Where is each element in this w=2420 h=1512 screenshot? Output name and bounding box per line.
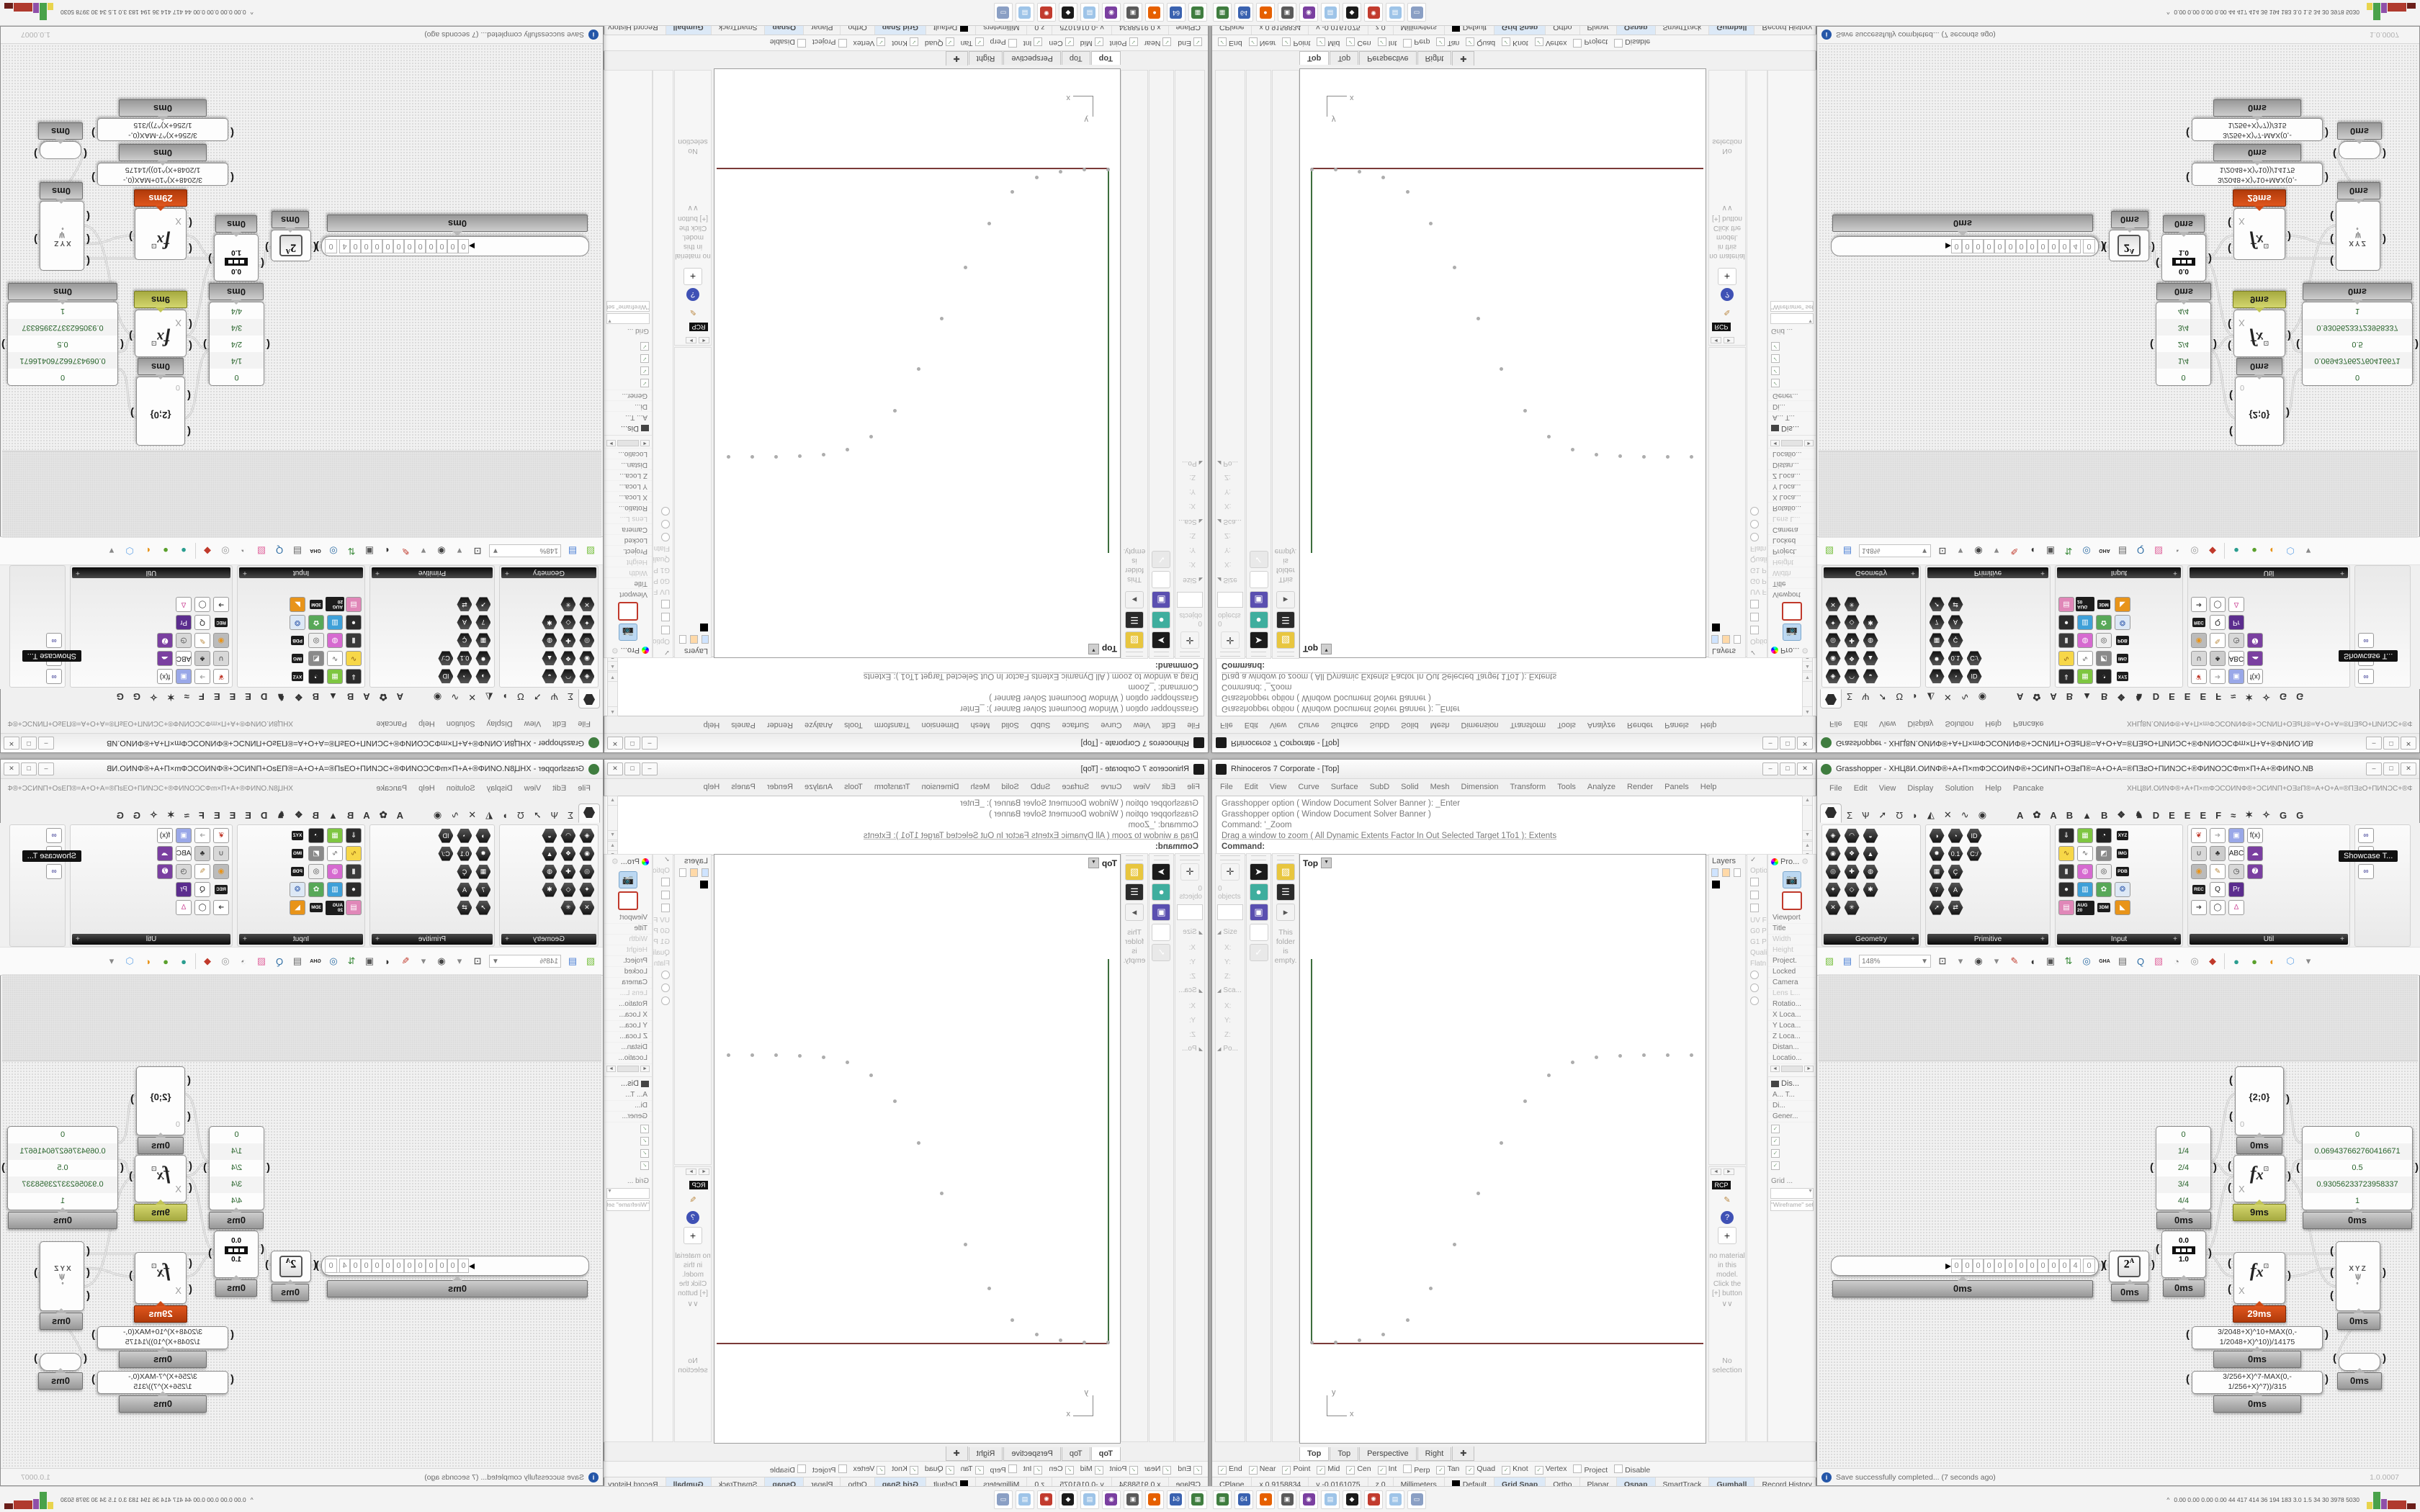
- wireframe-setting[interactable]: "Wireframe" set...: [606, 1200, 650, 1211]
- plugin-tab-0[interactable]: A: [2012, 807, 2027, 823]
- component-icon[interactable]: ▣: [174, 827, 193, 845]
- viewport-tab-top[interactable]: Top: [1330, 51, 1358, 65]
- property-row[interactable]: Lens L...: [1768, 513, 1816, 523]
- viewport-tab-top[interactable]: Top: [1091, 1447, 1121, 1461]
- option-radio[interactable]: [653, 982, 673, 995]
- ribbon-group-label[interactable]: Primitive+: [372, 567, 493, 578]
- donut-icon[interactable]: ◎: [2188, 544, 2201, 557]
- expression-2[interactable]: fx⊡X((): [135, 208, 187, 260]
- taskbar-save64[interactable]: 64: [1167, 4, 1186, 22]
- domain[interactable]: 0.01.0(): [214, 234, 259, 282]
- component-icon[interactable]: XYZ: [2113, 667, 2132, 685]
- gh-menu-view[interactable]: View: [519, 717, 547, 730]
- taskbar-window-app[interactable]: ▭: [1407, 4, 1426, 22]
- component-icon[interactable]: ID: [1965, 667, 1984, 685]
- display-sub-row[interactable]: A... T...: [1768, 1090, 1816, 1101]
- component-icon[interactable]: ✳: [1842, 899, 1861, 917]
- camera-icon[interactable]: ▣: [1152, 904, 1171, 921]
- viewport-tab-perspective[interactable]: Perspective: [1359, 1447, 1416, 1461]
- zoom-extents-icon[interactable]: ⊡: [471, 955, 484, 968]
- display-checkbox[interactable]: ✓: [604, 1135, 652, 1147]
- sketch-pen-icon[interactable]: ✎: [2008, 544, 2021, 557]
- component-icon[interactable]: ◑: [474, 827, 493, 845]
- find-icon[interactable]: Q: [273, 955, 286, 968]
- rhino-command-scrollbar[interactable]: ▲ ▼: [607, 796, 618, 842]
- component-icon[interactable]: ✱: [540, 613, 559, 631]
- menu-tools[interactable]: Tools: [1552, 780, 1581, 793]
- component-icon[interactable]: ✕: [578, 899, 596, 917]
- boxedit-input[interactable]: [1217, 592, 1243, 608]
- compass-icon[interactable]: ✛: [1180, 863, 1199, 881]
- taskbar-notes[interactable]: ▤: [1080, 4, 1099, 22]
- plugin-tab-8[interactable]: D: [2148, 807, 2164, 823]
- component-icon[interactable]: ➐: [156, 631, 174, 649]
- component-icon[interactable]: ◠: [559, 667, 578, 685]
- slider-digit[interactable]: 0: [1951, 1259, 1962, 1273]
- boxedit-input[interactable]: [1177, 592, 1203, 608]
- option-radio[interactable]: [653, 530, 673, 543]
- component-icon[interactable]: ∿: [326, 649, 344, 667]
- camera-pair-icon[interactable]: ▣: [363, 955, 376, 968]
- expression-2[interactable]: fx⊡X((): [2233, 1252, 2285, 1304]
- property-row[interactable]: Lens L...: [604, 513, 652, 523]
- option-checkbox[interactable]: [653, 610, 673, 623]
- viewport-tab-right[interactable]: Right: [969, 1447, 1003, 1461]
- close-button[interactable]: ✕: [607, 737, 623, 750]
- component-icon[interactable]: IMG: [288, 845, 307, 863]
- component-icon[interactable]: ◎: [1824, 631, 1842, 649]
- component-icon[interactable]: A: [455, 881, 474, 899]
- option-checkbox[interactable]: [653, 597, 673, 610]
- caret-icon[interactable]: ▾: [1990, 544, 2003, 557]
- component-icon[interactable]: ◍: [326, 863, 344, 881]
- plugin-tab-14[interactable]: ✶: [163, 806, 179, 823]
- osnap-knot[interactable]: ✓Knot: [892, 1464, 918, 1475]
- component-icon[interactable]: XYZ: [288, 667, 307, 685]
- maximize-button[interactable]: □: [1780, 762, 1796, 775]
- plugin-tab-13[interactable]: ≈: [180, 689, 194, 705]
- plugin-tab-3[interactable]: B: [343, 689, 358, 705]
- viewport-tab-perspective[interactable]: Perspective: [1003, 1447, 1060, 1461]
- minimize-button[interactable]: –: [2366, 762, 2382, 775]
- slider-digit[interactable]: 0: [2005, 1259, 2016, 1273]
- input-grip[interactable]: (: [189, 245, 192, 252]
- display-checkbox[interactable]: ✓: [604, 1122, 652, 1135]
- menu-render[interactable]: Render: [762, 719, 798, 732]
- sphere-icon[interactable]: ●: [1250, 611, 1268, 629]
- tab-mesh[interactable]: ◭: [1923, 806, 1939, 823]
- component-icon[interactable]: Pr: [2227, 881, 2246, 899]
- axes-icon[interactable]: ⇅: [345, 955, 358, 968]
- plugin-tab-4[interactable]: ▲: [2078, 807, 2096, 823]
- option-radio[interactable]: [1747, 969, 1767, 982]
- input-grip[interactable]: (: [2333, 1355, 2336, 1362]
- component-icon[interactable]: ▣: [174, 667, 193, 685]
- menu-view[interactable]: View: [1129, 780, 1156, 793]
- property-row[interactable]: Width: [1768, 567, 1816, 577]
- command-prompt[interactable]: Command:: [614, 660, 1198, 670]
- input-grip[interactable]: (: [86, 235, 90, 243]
- component-icon[interactable]: ◔: [455, 827, 474, 845]
- component-icon[interactable]: ▮: [344, 863, 363, 881]
- taskbar-notes-2[interactable]: ▤: [1386, 4, 1404, 22]
- taskbar-purple-app[interactable]: ◉: [1299, 4, 1318, 22]
- input-grip[interactable]: (: [2228, 320, 2231, 328]
- menu-view[interactable]: View: [1129, 719, 1156, 732]
- input-grip[interactable]: (: [120, 341, 124, 348]
- wireframe-setting[interactable]: "Wireframe" set...: [1770, 301, 1814, 312]
- option-radio[interactable]: [1747, 995, 1767, 1008]
- scroll-up-icon[interactable]: ▲: [608, 706, 617, 716]
- pager-right-icon[interactable]: ►: [686, 1169, 696, 1175]
- caret-icon[interactable]: ▾: [417, 955, 430, 968]
- gha-icon[interactable]: GHA: [309, 544, 322, 557]
- property-row[interactable]: Y Loca...: [1768, 1021, 1816, 1032]
- values-panel[interactable]: 00.0694376627604166710.50.93056233723958…: [2302, 1126, 2413, 1210]
- gear-icon[interactable]: ⚙: [1801, 646, 1809, 655]
- gem-icon[interactable]: ◆: [2206, 955, 2219, 968]
- taskbar-notes[interactable]: ▤: [1321, 4, 1340, 22]
- tab-vector[interactable]: ➚: [1874, 689, 1891, 706]
- open-icon[interactable]: ▨: [584, 544, 597, 557]
- material-properties-button[interactable]: [618, 891, 638, 910]
- property-row[interactable]: Camera: [1768, 523, 1816, 534]
- component-icon[interactable]: ∞: [45, 863, 63, 881]
- output-grip[interactable]: ): [34, 1355, 37, 1362]
- edit-material-icon[interactable]: ✎: [1718, 304, 1736, 320]
- layer-filter-icon[interactable]: [679, 635, 686, 644]
- plugin-tab-2[interactable]: A: [359, 689, 374, 705]
- gh-menu-pancake[interactable]: Pancake: [2008, 717, 2049, 730]
- menu-transform[interactable]: Transform: [869, 780, 915, 793]
- gh-titlebar[interactable]: Grasshopper - XHЦ8И.ОИNΦ®+A+Π×mΦƆCОИNΦ®+…: [1, 733, 603, 752]
- construct-point[interactable]: XYZ\|/°(((): [2336, 201, 2380, 271]
- osnap-perp[interactable]: Perp: [1403, 1464, 1430, 1475]
- tab-maths[interactable]: Σ: [563, 689, 578, 705]
- taskbar-window-app[interactable]: ▭: [994, 4, 1013, 22]
- preview-eye-icon[interactable]: ◉: [435, 544, 448, 557]
- display-checkbox[interactable]: ✓: [604, 1147, 652, 1159]
- slider-digit[interactable]: 0: [2016, 1259, 2027, 1273]
- taskbar-display[interactable]: ▣: [1124, 4, 1142, 22]
- slider-digit[interactable]: 0: [2005, 239, 2016, 253]
- plugin-tab-6[interactable]: ❖: [2112, 806, 2130, 823]
- add-material-button[interactable]: +: [684, 1227, 702, 1244]
- ribbon-group-label[interactable]: Input+: [239, 934, 363, 945]
- layer-filter-icon[interactable]: [679, 868, 686, 877]
- graduation-cap-icon[interactable]: ➤: [1152, 863, 1171, 881]
- ribbon-group-label[interactable]: Util+: [2190, 567, 2348, 578]
- expr-note-1[interactable]: 3/2048+X)^10+MAX(0,-1/2048+X)^10))/14175…: [97, 163, 228, 186]
- taskbar-app-green[interactable]: ▦: [1188, 1490, 1207, 1509]
- input-grip[interactable]: (: [2186, 129, 2190, 136]
- plugin-tab-12[interactable]: F: [2211, 807, 2226, 823]
- swatch-icon[interactable]: [1250, 924, 1268, 941]
- slider-digit[interactable]: 0: [361, 239, 372, 253]
- property-row[interactable]: Rotatio...: [604, 502, 652, 513]
- tab-sets[interactable]: Ѱ: [1857, 689, 1873, 705]
- quality-high-icon[interactable]: ◐: [2266, 544, 2279, 557]
- input-grip[interactable]: (: [313, 243, 317, 251]
- gem-icon[interactable]: ◆: [2206, 544, 2219, 557]
- rhino-command-history[interactable]: Grasshopper option ( Window Document Sol…: [1216, 796, 1820, 855]
- plugin-tab-17[interactable]: G: [2292, 807, 2308, 823]
- output-grip[interactable]: ): [2208, 1250, 2212, 1257]
- taskbar-app-green[interactable]: ▦: [1213, 1490, 1232, 1509]
- component-icon[interactable]: ▤: [2057, 595, 2076, 613]
- component-icon[interactable]: ❂: [288, 881, 307, 899]
- property-row[interactable]: Locatio...: [604, 448, 652, 459]
- osnap-mid[interactable]: ✓Mid: [1317, 37, 1340, 48]
- osnap-mid[interactable]: ✓Mid: [1080, 1464, 1103, 1475]
- chevron-down-icon[interactable]: ▼: [1088, 644, 1099, 654]
- chevron-down-icon[interactable]: ▼: [1321, 858, 1332, 868]
- component-icon[interactable]: ▮: [344, 631, 363, 649]
- gh-titlebar[interactable]: Grasshopper - XHЦ8И.ОИNΦ®+A+Π×mΦƆCОИNΦ®+…: [1817, 733, 2419, 752]
- shell-icon[interactable]: ◔: [2170, 955, 2183, 968]
- property-row[interactable]: Width: [1768, 935, 1816, 945]
- display-tab[interactable]: Dis...: [621, 424, 639, 433]
- display-sub-row[interactable]: Gener...: [604, 1112, 652, 1122]
- ribbon-group-label[interactable]: Primitive+: [1927, 567, 2048, 578]
- menu-help[interactable]: Help: [1695, 780, 1722, 793]
- plugin-tab-3[interactable]: B: [2062, 807, 2077, 823]
- menu-analyze[interactable]: Analyze: [1582, 719, 1621, 732]
- property-row[interactable]: X Loca...: [1768, 491, 1816, 502]
- gh-menu-solution[interactable]: Solution: [442, 782, 480, 795]
- help-icon[interactable]: ?: [1721, 288, 1734, 301]
- slider-digit[interactable]: 0: [404, 239, 415, 253]
- checkbox-icon[interactable]: ✓: [1152, 944, 1171, 961]
- component-icon[interactable]: ∿: [2076, 649, 2094, 667]
- sketch-pen-icon[interactable]: ✎: [399, 955, 412, 968]
- property-row[interactable]: Width: [604, 567, 652, 577]
- component-icon[interactable]: REC: [2190, 881, 2208, 899]
- gh-menu-file[interactable]: File: [1824, 717, 1847, 730]
- slider-digit[interactable]: 0: [426, 1259, 436, 1273]
- property-row[interactable]: Height: [1768, 556, 1816, 567]
- component-icon[interactable]: ✚: [1842, 863, 1861, 881]
- tab-vector[interactable]: ➚: [1874, 806, 1891, 823]
- menu-mesh[interactable]: Mesh: [965, 719, 995, 732]
- osnap-project[interactable]: Project: [1573, 1464, 1608, 1475]
- component-icon[interactable]: A: [1946, 613, 1965, 631]
- slider-digit[interactable]: 0: [1994, 239, 2005, 253]
- more-chevrons[interactable]: ∨∨: [1709, 203, 1745, 214]
- taskbar-window-app[interactable]: ▭: [1407, 1490, 1426, 1509]
- grid-dropdown[interactable]: ▼: [1770, 313, 1814, 324]
- viewport-properties-button[interactable]: 📷: [619, 624, 637, 641]
- swirl-icon[interactable]: ◎: [2080, 544, 2093, 557]
- maximize-button[interactable]: □: [2383, 762, 2399, 775]
- camera-icon[interactable]: ▣: [1250, 904, 1268, 921]
- property-row[interactable]: Title: [1768, 577, 1816, 588]
- component-icon[interactable]: ✚: [559, 631, 578, 649]
- shell-icon[interactable]: ◔: [237, 955, 250, 968]
- plugin-tab-3[interactable]: B: [2062, 689, 2077, 705]
- display-checkbox[interactable]: ✓: [1768, 1122, 1816, 1135]
- gh-menu-file[interactable]: File: [573, 717, 596, 730]
- ribbon-group-label[interactable]: Geometry+: [1824, 934, 1919, 945]
- slider-digit[interactable]: 0: [2048, 1259, 2059, 1273]
- input-grip[interactable]: (: [189, 320, 192, 328]
- component-icon[interactable]: AUG 20: [2076, 899, 2094, 917]
- component-icon[interactable]: ✎: [193, 863, 212, 881]
- ribbon-group-label[interactable]: Util+: [2190, 934, 2348, 945]
- tab-intersect[interactable]: ✕: [464, 806, 480, 823]
- grid-dropdown[interactable]: ▼: [606, 313, 650, 324]
- construct-point[interactable]: XYZ\|/°(((): [40, 201, 84, 271]
- slider-digit[interactable]: 0: [372, 239, 382, 253]
- option-checkbox[interactable]: [653, 623, 673, 636]
- osnap-project[interactable]: Project: [812, 1464, 847, 1475]
- component-icon[interactable]: Δ: [174, 595, 193, 613]
- menu-icon[interactable]: ☰: [1125, 883, 1144, 901]
- output-grip[interactable]: ): [208, 1250, 212, 1257]
- zoom-extents-icon[interactable]: ⊡: [471, 544, 484, 557]
- camera-icon[interactable]: ▣: [1152, 591, 1171, 608]
- property-row[interactable]: Rotatio...: [1768, 502, 1816, 513]
- component-icon[interactable]: ▥: [326, 881, 344, 899]
- property-row[interactable]: Project.: [1768, 545, 1816, 556]
- osnap-tan[interactable]: ✓Tan: [1436, 37, 1459, 48]
- property-row[interactable]: Locatio...: [1768, 1053, 1816, 1064]
- component-icon[interactable]: ∿: [2057, 649, 2076, 667]
- property-row[interactable]: Viewport: [604, 913, 652, 924]
- path-viewer[interactable]: {2;0}0((): [2235, 377, 2284, 446]
- layer-new-icon[interactable]: [702, 868, 709, 877]
- plugin-tab-9[interactable]: E: [241, 807, 256, 823]
- caret-icon[interactable]: ▾: [105, 955, 118, 968]
- component-icon[interactable]: ∿: [344, 649, 363, 667]
- close-button[interactable]: ✕: [2401, 762, 2416, 775]
- quarters-panel[interactable]: 01/42/43/44/4(): [2156, 1126, 2211, 1210]
- component-icon[interactable]: ◒: [1861, 827, 1880, 845]
- half-icon[interactable]: ◖: [2026, 955, 2039, 968]
- component-icon[interactable]: ➚: [474, 899, 493, 917]
- graduation-cap-icon[interactable]: ➤: [1152, 631, 1171, 649]
- slider-digit[interactable]: 0: [393, 239, 404, 253]
- slider-digit[interactable]: 0: [1962, 1259, 1973, 1273]
- axes-icon[interactable]: ⇅: [2062, 955, 2075, 968]
- component-icon[interactable]: ▲: [1861, 845, 1880, 863]
- component-icon[interactable]: ➐: [156, 863, 174, 881]
- shell-icon[interactable]: ◔: [2170, 544, 2183, 557]
- tab-transform[interactable]: ∿: [447, 806, 463, 823]
- osnap-int[interactable]: ✓Int: [1023, 37, 1043, 48]
- input-grip[interactable]: (: [2150, 1164, 2154, 1171]
- plugin-tab-10[interactable]: E: [225, 689, 241, 705]
- input-grip[interactable]: (: [2186, 1376, 2190, 1383]
- help-icon[interactable]: ?: [686, 288, 699, 301]
- scroll-down-icon[interactable]: ▼: [608, 672, 617, 682]
- component-icon[interactable]: XYZ: [2113, 827, 2132, 845]
- component-icon[interactable]: ◍: [540, 863, 559, 881]
- gear-icon[interactable]: ⚙: [611, 857, 619, 866]
- maximize-button[interactable]: □: [624, 737, 640, 750]
- osnap-cen[interactable]: ✓Cen: [1346, 37, 1371, 48]
- plugin-tab-9[interactable]: E: [2164, 807, 2179, 823]
- osnap-disable[interactable]: Disable: [770, 1464, 806, 1475]
- quality-custom-icon[interactable]: ⬡: [123, 544, 136, 557]
- caret-icon[interactable]: ▾: [453, 544, 466, 557]
- output-grip[interactable]: ): [129, 332, 133, 339]
- component-icon[interactable]: ▮: [2057, 631, 2076, 649]
- component-icon[interactable]: ◈: [1824, 667, 1842, 685]
- osnap-int[interactable]: ✓Int: [1378, 1464, 1397, 1475]
- pager-left-icon[interactable]: ◄: [699, 337, 709, 343]
- viewport-tab-top[interactable]: Top: [1091, 51, 1121, 65]
- output-grip[interactable]: ): [91, 129, 95, 136]
- expand-icon[interactable]: ▸: [1276, 904, 1295, 921]
- option-checkbox[interactable]: [1747, 623, 1767, 636]
- menu-analyze[interactable]: Analyze: [799, 719, 838, 732]
- component-icon[interactable]: ✸: [474, 845, 493, 863]
- input-grip[interactable]: (: [2228, 1260, 2231, 1267]
- component-icon[interactable]: ◩: [2094, 649, 2113, 667]
- property-row[interactable]: Title: [604, 924, 652, 935]
- slider-digit[interactable]: 0: [426, 239, 436, 253]
- gh-menu-solution[interactable]: Solution: [1940, 782, 1978, 795]
- component-icon[interactable]: ∞: [45, 667, 63, 685]
- display-sub-row[interactable]: Gener...: [1768, 390, 1816, 400]
- output-grip[interactable]: ): [265, 243, 269, 251]
- output-grip[interactable]: ): [2383, 1355, 2386, 1362]
- component-icon[interactable]: ◣: [2113, 899, 2132, 917]
- plugin-tab-6[interactable]: ❖: [290, 806, 308, 823]
- component-icon[interactable]: 7: [1927, 881, 1946, 899]
- slider-digit[interactable]: 0: [2059, 1259, 2070, 1273]
- zoom-extents-icon[interactable]: ⊡: [1936, 955, 1949, 968]
- preview-eye-icon[interactable]: ◉: [1972, 955, 1985, 968]
- ribbon-group-label[interactable]: Input+: [2057, 567, 2181, 578]
- tab-sets[interactable]: Ѱ: [547, 689, 563, 705]
- menu-file[interactable]: File: [1215, 719, 1238, 732]
- plugin-tab-1[interactable]: ✿: [375, 806, 392, 823]
- osnap-tan[interactable]: ✓Tan: [961, 1464, 984, 1475]
- gh-canvas[interactable]: ▸0000000000040.)0ms2A()0ms0.01.0()0ms01/…: [1819, 44, 2418, 538]
- output-grip[interactable]: ): [91, 174, 95, 181]
- gha-icon[interactable]: GHA: [309, 955, 322, 968]
- swirl-icon[interactable]: ◎: [327, 955, 340, 968]
- taskbar-notes[interactable]: ▤: [1080, 1490, 1099, 1509]
- input-grip[interactable]: (: [230, 1376, 234, 1383]
- component-icon[interactable]: ▥: [2076, 881, 2094, 899]
- plugin-tab-7[interactable]: ♞: [272, 689, 290, 706]
- component-icon[interactable]: ◎: [307, 631, 326, 649]
- component-icon[interactable]: C:/: [436, 845, 455, 863]
- component-icon[interactable]: ∪: [212, 845, 230, 863]
- osnap-project[interactable]: Project: [1573, 37, 1608, 48]
- menu-file[interactable]: File: [1182, 780, 1205, 793]
- display-sub-row[interactable]: Di...: [1768, 400, 1816, 411]
- component-icon[interactable]: ABC: [2227, 845, 2246, 863]
- layer-swatch[interactable]: [1712, 881, 1720, 888]
- power-2a[interactable]: 2A(): [2109, 230, 2149, 261]
- input-grip[interactable]: (: [261, 1246, 264, 1253]
- component-icon[interactable]: ✸: [1927, 845, 1946, 863]
- menu-edit[interactable]: Edit: [1240, 780, 1263, 793]
- plugin-tab-14[interactable]: ✶: [2241, 689, 2257, 706]
- open-icon[interactable]: ▨: [1823, 955, 1836, 968]
- component-icon[interactable]: C:/: [1965, 845, 1984, 863]
- menu-analyze[interactable]: Analyze: [1582, 780, 1621, 793]
- gh-menu-help[interactable]: Help: [1980, 782, 2007, 795]
- component-icon[interactable]: IMG: [288, 649, 307, 667]
- expand-icon[interactable]: ▸: [1276, 591, 1295, 608]
- pager-left-icon[interactable]: ◄: [640, 440, 650, 446]
- property-row[interactable]: Height: [604, 945, 652, 956]
